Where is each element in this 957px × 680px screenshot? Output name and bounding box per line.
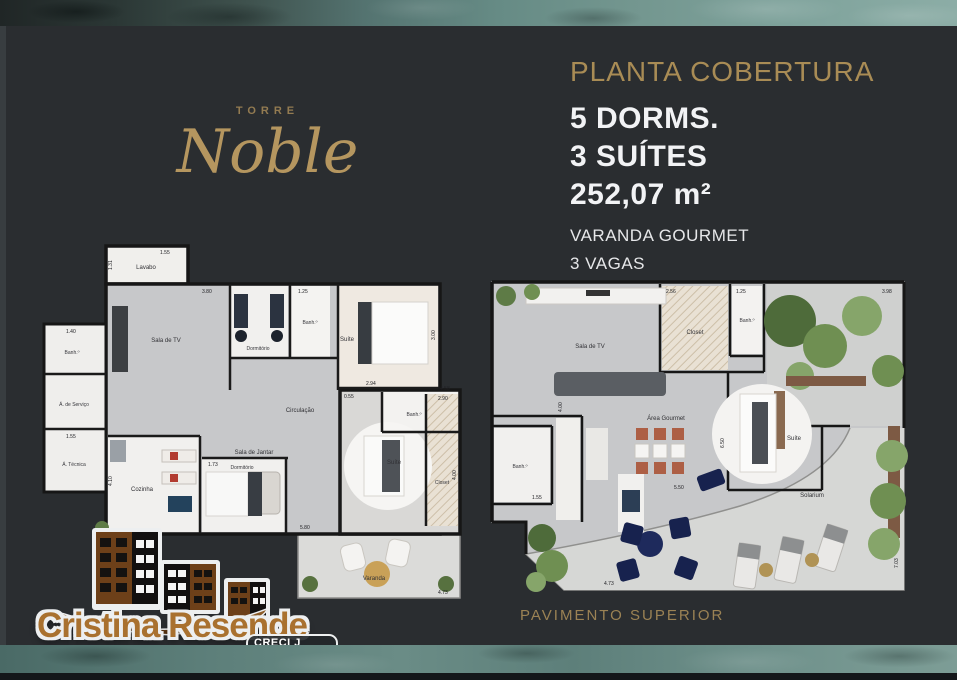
room-label-tecnica: Á. Técnica bbox=[62, 461, 86, 468]
dim-banh-r: 2.90 bbox=[438, 396, 448, 402]
dim-suite-up: 6.50 bbox=[720, 438, 726, 448]
dim-tecnica: 1.55 bbox=[66, 434, 76, 440]
dim-terrace: 3.98 bbox=[882, 289, 892, 295]
room-label-suite-2: Suíte bbox=[387, 460, 402, 466]
room-label-gourmet: Área Gourmet bbox=[647, 415, 685, 422]
floorplan-upper: Sala de TV Closet Banh.º Banh.º Suíte Ár… bbox=[490, 276, 908, 596]
dim-suite-h: 3.00 bbox=[431, 330, 437, 340]
room-label-banh-up1: Banh.º bbox=[740, 318, 755, 324]
room-label-suite-up: Suíte bbox=[787, 436, 802, 442]
header-block: PLANTA COBERTURA 5 DORMS. 3 SUÍTES 252,0… bbox=[570, 56, 930, 278]
room-label-circulacao: Circulação bbox=[286, 408, 315, 414]
dim-dorm-b: 1.73 bbox=[208, 462, 218, 468]
tower-name: Noble bbox=[95, 121, 440, 183]
room-label-lavabo: Lavabo bbox=[136, 265, 156, 271]
dim-banh-up1: 1.25 bbox=[736, 289, 746, 295]
dim-banh-l: 1.40 bbox=[66, 329, 76, 335]
room-label-jantar: Sala de Jantar bbox=[235, 450, 274, 456]
room-label-banh-up2: Banh.º bbox=[513, 464, 528, 470]
feature-vagas: 3 VAGAS bbox=[570, 250, 930, 278]
room-label-cozinha: Cozinha bbox=[131, 487, 154, 493]
dim-kitchen: 4.00 bbox=[558, 402, 564, 412]
room-label-solarium: Solarium bbox=[800, 493, 824, 499]
spec-area: 252,07 m² bbox=[570, 176, 930, 214]
tower-label: TORRE bbox=[95, 105, 440, 117]
room-label-suite-1: Suíte bbox=[340, 337, 355, 343]
dim-closet-top: 4.58 bbox=[440, 386, 450, 392]
spec-dorms: 5 DORMS. bbox=[570, 100, 930, 138]
room-label-sala-tv: Sala de TV bbox=[151, 338, 181, 344]
room-label-dormitorio-1: Dormitório bbox=[246, 346, 269, 352]
dim-banh-up2: 1.55 bbox=[532, 495, 542, 501]
dim-varanda: 4.73 bbox=[438, 590, 448, 596]
flyer-page: TORRE Noble PLANTA COBERTURA 5 DORMS. 3 … bbox=[0, 0, 957, 680]
brand-block: TORRE Noble bbox=[95, 105, 440, 183]
dim-lavabo-h: 1.31 bbox=[108, 260, 114, 270]
building-large bbox=[92, 528, 162, 610]
room-label-banh-3: Banh.º bbox=[407, 412, 422, 418]
dim-deck-w: 4.73 bbox=[604, 581, 614, 587]
room-label-banh-1: Banh.º bbox=[303, 320, 318, 326]
dim-gourmet: 5.50 bbox=[674, 485, 684, 491]
dim-cozinha: 4.10 bbox=[108, 476, 114, 486]
spec-suites: 3 SUÍTES bbox=[570, 138, 930, 176]
marble-bottom-strip bbox=[0, 645, 957, 673]
plan-title: PLANTA COBERTURA bbox=[570, 56, 930, 88]
gourmet-tables bbox=[635, 428, 685, 474]
room-label-closet: Closet bbox=[435, 480, 450, 486]
dim-closet-side: 4.00 bbox=[452, 470, 458, 480]
dim-closet-up: 2.56 bbox=[666, 289, 676, 295]
dim-suite-w: 2.94 bbox=[366, 381, 376, 387]
marble-top-strip bbox=[0, 0, 957, 26]
dim-banh-top: 1.25 bbox=[298, 289, 308, 295]
room-label-servico: Á. de Serviço bbox=[59, 401, 89, 408]
dim-lavabo-w: 1.55 bbox=[160, 250, 170, 256]
room-label-sala-tv-up: Sala de TV bbox=[575, 344, 605, 350]
room-label-varanda: Varanda bbox=[363, 576, 386, 582]
room-label-closet-up: Closet bbox=[686, 330, 703, 336]
feature-varanda: VARANDA GOURMET bbox=[570, 222, 930, 250]
dim-deck-h: 7.03 bbox=[894, 558, 900, 568]
dim-sala-tv: 3.80 bbox=[202, 289, 212, 295]
page-bottom-edge bbox=[0, 673, 957, 680]
plan-caption: PAVIMENTO SUPERIOR bbox=[520, 607, 724, 624]
dim-small: 0.55 bbox=[344, 394, 354, 400]
feature-list: VARANDA GOURMET 3 VAGAS bbox=[570, 222, 930, 278]
room-label-banh-2: Banh.º bbox=[65, 350, 80, 356]
room-label-dormitorio-2: Dormitório bbox=[230, 465, 253, 471]
